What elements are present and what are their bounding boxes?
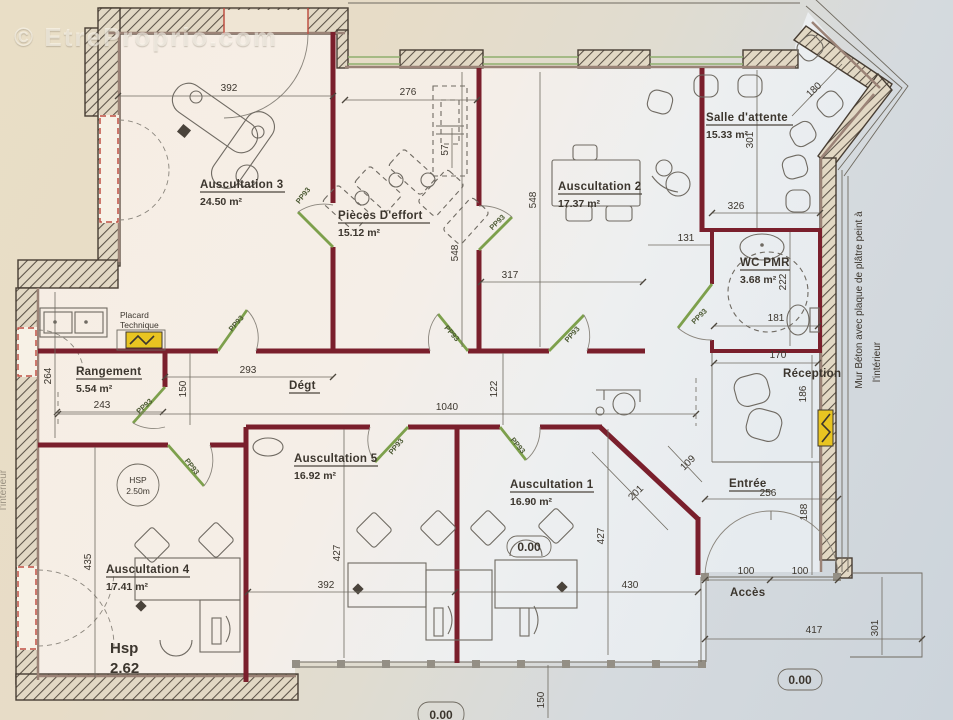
svg-text:0.00: 0.00 (788, 673, 812, 687)
room-label-ausc5: Auscultation 5 (294, 453, 378, 465)
dim-ausc2-height: 548 (528, 191, 539, 208)
dim-ausc3-width: 392 (221, 83, 238, 94)
dim-entree-width: 256 (760, 488, 777, 499)
room-label-wc: WC PMR (740, 257, 790, 269)
svg-text:0.00: 0.00 (429, 708, 453, 720)
room-label-acces: Accès (730, 587, 765, 599)
floor-plan-photo: © EtreProprio.com (0, 0, 953, 720)
room-area-salle: 15.33 m² (706, 129, 749, 141)
dim-ausc2-width: 317 (502, 270, 519, 281)
dim-salle-height: 301 (745, 131, 756, 148)
placard-technique-label-1: Placard (120, 310, 149, 320)
dim-ausc5-height: 427 (332, 544, 343, 561)
dim-ausc4-height: 435 (83, 553, 94, 570)
wall-note-line2: l'intérieur (872, 341, 883, 382)
room-label-salle: Salle d'attente (706, 112, 788, 124)
dim-door-right: 100 (792, 566, 809, 577)
dim-rangement-width: 243 (94, 400, 111, 411)
dim-wc-corridor: 131 (678, 233, 695, 244)
hsp-circle-label-2: 2.50m (126, 486, 150, 496)
dim-facade-offset: 150 (536, 691, 547, 708)
level-mark-bottom: 0.00 (418, 702, 464, 720)
dim-ausc1-width: 430 (622, 580, 639, 591)
room-area-ausc2: 17.37 m² (558, 198, 601, 210)
room-area-pieces: 15.12 m² (338, 227, 381, 239)
room-label-reception: Réception (783, 368, 841, 380)
dim-ausc5-width: 392 (318, 580, 335, 591)
room-area-wc: 3.68 m² (740, 274, 777, 286)
watermark: © EtreProprio.com (14, 22, 278, 53)
floor-plan-drawing: Auscultation 3 24.50 m² Pièces D'effort … (0, 0, 953, 720)
dim-reception-height: 186 (798, 385, 809, 402)
room-label-rangement: Rangement (76, 366, 141, 378)
room-label-pieces: Pièces D'effort (338, 210, 423, 222)
room-label-ausc4: Auscultation 4 (106, 564, 190, 576)
room-label-ausc2: Auscultation 2 (558, 181, 641, 193)
dim-degt-length: 1040 (436, 402, 459, 413)
left-edge-note: l'intérieur (0, 469, 9, 510)
dim-rangement-height: 264 (43, 367, 54, 384)
room-label-ausc3: Auscultation 3 (200, 179, 283, 191)
dim-entree-height: 188 (799, 503, 810, 520)
room-label-ausc1: Auscultation 1 (510, 479, 594, 491)
dim-pieces-width: 276 (400, 87, 417, 98)
dim-salle-width: 326 (728, 201, 745, 212)
hsp-label-1: Hsp (110, 640, 138, 657)
room-area-ausc4: 17.41 m² (106, 581, 149, 593)
dim-door-left: 100 (738, 566, 755, 577)
dim-reception-width: 170 (770, 350, 787, 361)
dim-degt-width: 293 (240, 365, 257, 376)
placard-technique-label-2: Technique (120, 320, 159, 330)
svg-text:0.00: 0.00 (517, 540, 541, 554)
dim-pieces-height: 548 (450, 244, 461, 261)
room-area-ausc1: 16.90 m² (510, 496, 553, 508)
hsp-label-2: 2.62 (110, 660, 139, 677)
dim-pieces-depth: 57 (440, 144, 451, 156)
dim-wc-height: 222 (778, 273, 789, 290)
electrical-panel-reception-icon (818, 410, 833, 446)
dim-ausc1-height: 427 (596, 527, 607, 544)
wall-note-line1: Mur Béton avec plaque de plâtre peint à (854, 211, 865, 389)
electrical-panel-icon (126, 332, 162, 348)
dim-degt-height-right: 122 (489, 380, 500, 397)
level-mark-exterior: 0.00 (778, 669, 822, 690)
room-area-ausc5: 16.92 m² (294, 470, 337, 482)
dim-wc-width: 181 (768, 313, 785, 324)
room-area-rangement: 5.54 m² (76, 383, 113, 395)
room-label-degt: Dégt (289, 380, 316, 392)
room-area-ausc3: 24.50 m² (200, 196, 243, 208)
dim-acces-width: 417 (806, 625, 823, 636)
dim-degt-height-left: 150 (178, 380, 189, 397)
dim-exterior-side: 301 (870, 619, 881, 636)
hsp-circle-label-1: HSP (129, 475, 147, 485)
